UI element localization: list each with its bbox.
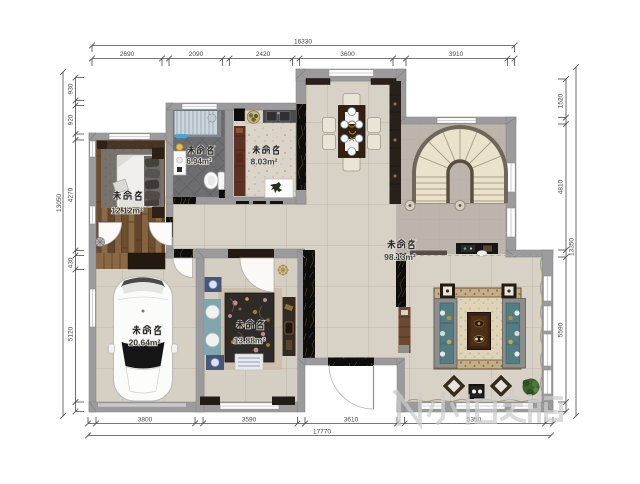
svg-text:3600: 3600	[340, 51, 355, 58]
svg-text:98.13m²: 98.13m²	[384, 252, 416, 262]
svg-text:13050: 13050	[56, 194, 63, 212]
svg-text:13.88m²: 13.88m²	[234, 336, 266, 346]
svg-text:920: 920	[68, 114, 75, 125]
svg-text:2090: 2090	[189, 51, 204, 58]
svg-text:5590: 5590	[558, 322, 565, 337]
svg-text:1520: 1520	[558, 93, 565, 108]
svg-text:13350: 13350	[569, 238, 576, 256]
svg-text:4270: 4270	[68, 187, 75, 202]
svg-text:17770: 17770	[313, 429, 331, 436]
svg-text:3910: 3910	[449, 51, 464, 58]
svg-text:4810: 4810	[558, 179, 565, 194]
svg-text:20.64m²: 20.64m²	[129, 338, 161, 348]
svg-text:8.03m²: 8.03m²	[251, 157, 278, 167]
svg-text:3590: 3590	[242, 417, 257, 424]
svg-text:5120: 5120	[68, 326, 75, 341]
svg-text:930: 930	[68, 83, 75, 94]
svg-text:6.94m²: 6.94m²	[186, 157, 212, 166]
svg-text:430: 430	[68, 257, 75, 268]
svg-text:3610: 3610	[344, 417, 359, 424]
svg-text:16330: 16330	[294, 39, 312, 46]
svg-text:12.12m²: 12.12m²	[111, 206, 143, 216]
svg-text:2690: 2690	[120, 51, 135, 58]
svg-text:3800: 3800	[138, 417, 153, 424]
svg-text:2420: 2420	[256, 51, 271, 58]
